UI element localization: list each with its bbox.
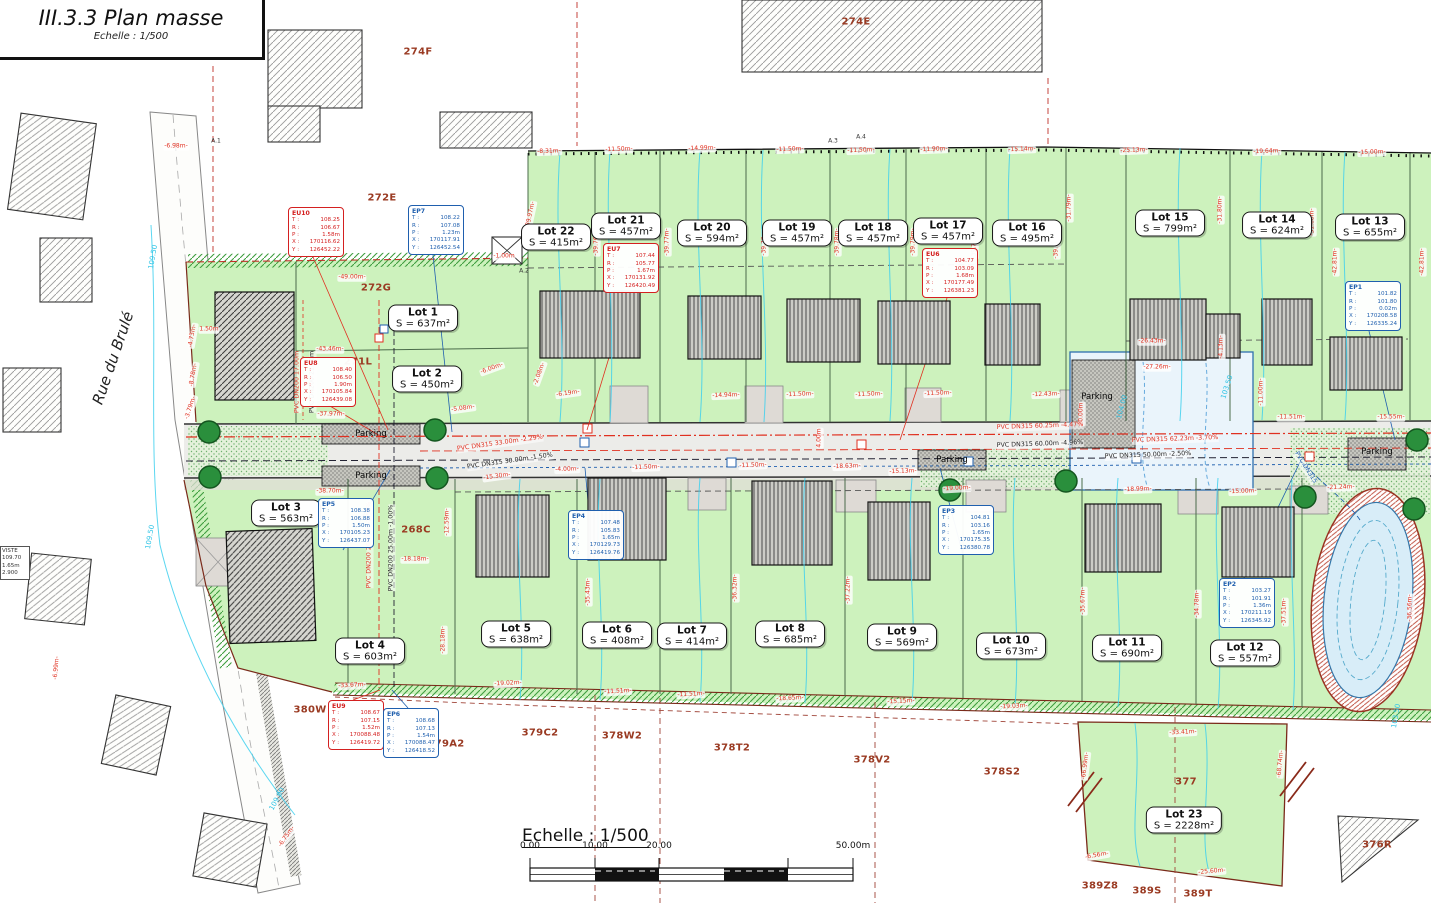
survey-info-line: VISTE xyxy=(2,548,28,555)
survey-info-line: 1.65m xyxy=(2,563,28,570)
drawing-title: III.3.3 Plan masse xyxy=(0,6,262,30)
plan-masse-canvas: 109.50109.50104.00103.50103.50109.00 -6.… xyxy=(0,0,1431,903)
survey-point-info-box: VISTE109.701.65m2.900 xyxy=(0,546,30,580)
site-plan-drawing xyxy=(0,0,1431,903)
scale-bar-title: Echelle : 1/500 xyxy=(522,826,649,848)
survey-info-line: 2.900 xyxy=(2,570,28,577)
survey-info-line: 109.70 xyxy=(2,555,28,562)
drawing-scale: Echelle : 1/500 xyxy=(0,31,262,42)
title-block: III.3.3 Plan masse Echelle : 1/500 xyxy=(0,0,265,60)
